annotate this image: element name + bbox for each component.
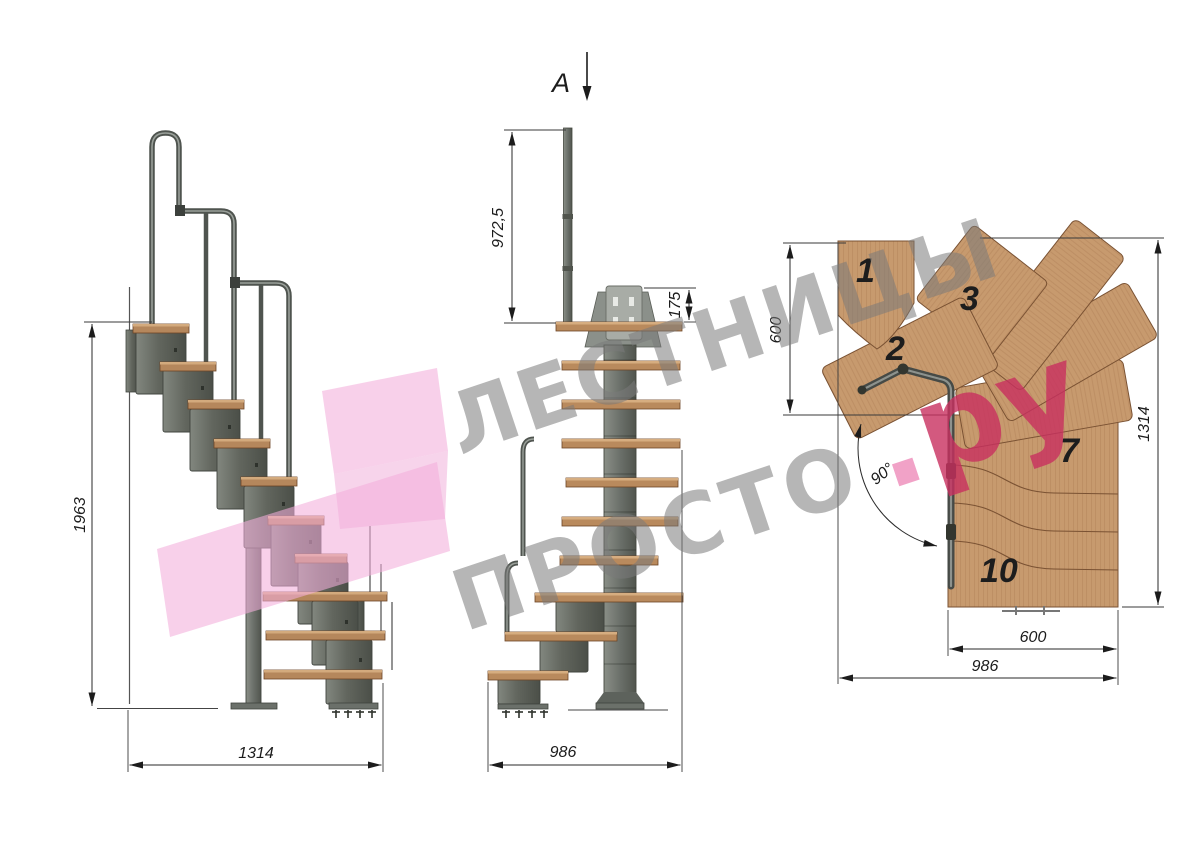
watermark-arrow-band xyxy=(157,462,450,637)
watermark-arrow xyxy=(0,0,1200,849)
drawing-sheet: 1963 1314 A xyxy=(0,0,1200,849)
